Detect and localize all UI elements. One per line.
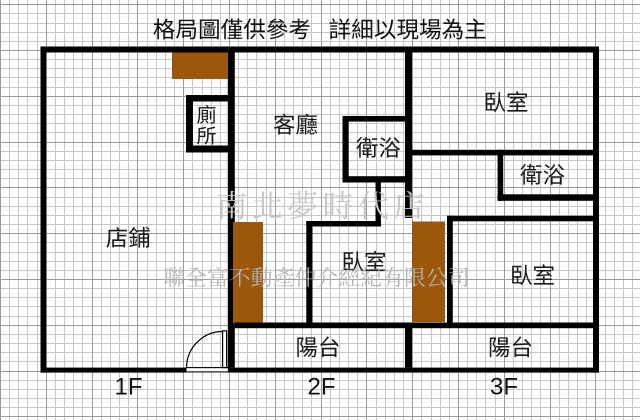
svg-text:2F: 2F: [307, 374, 335, 401]
svg-text:1F: 1F: [114, 374, 142, 401]
svg-text:3F: 3F: [490, 374, 518, 401]
